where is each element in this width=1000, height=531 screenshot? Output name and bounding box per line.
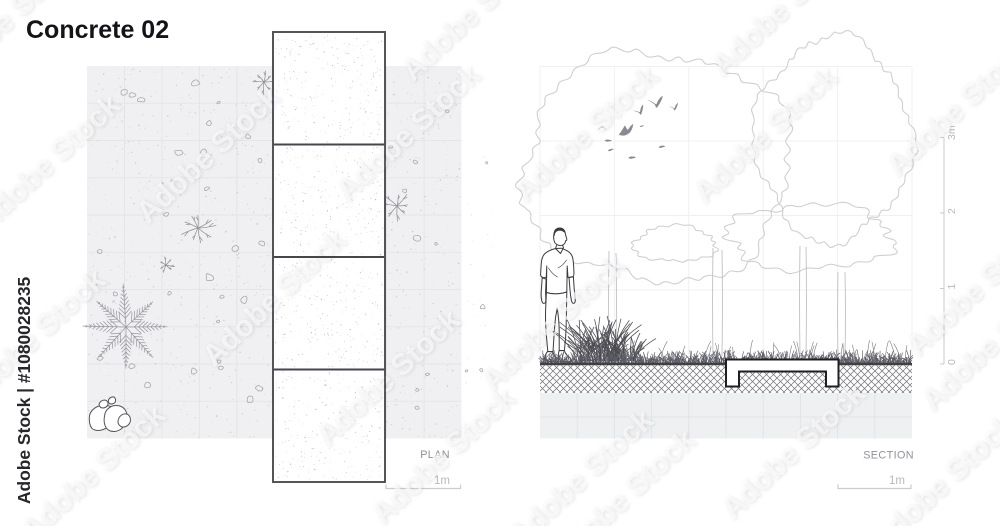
svg-text:Adobe Stock: Adobe Stock bbox=[0, 0, 87, 93]
svg-text:Adobe Stock: Adobe Stock bbox=[508, 59, 665, 208]
svg-text:Adobe Stock: Adobe Stock bbox=[880, 33, 1000, 182]
svg-text:1m: 1m bbox=[889, 475, 905, 487]
svg-text:Adobe Stock: Adobe Stock bbox=[687, 60, 844, 209]
svg-text:2: 2 bbox=[946, 208, 958, 214]
svg-text:Concrete 02: Concrete 02 bbox=[26, 16, 169, 44]
svg-text:Adobe Stock | #1080028235: Adobe Stock | #1080028235 bbox=[14, 276, 34, 504]
svg-text:SECTION: SECTION bbox=[863, 450, 914, 462]
